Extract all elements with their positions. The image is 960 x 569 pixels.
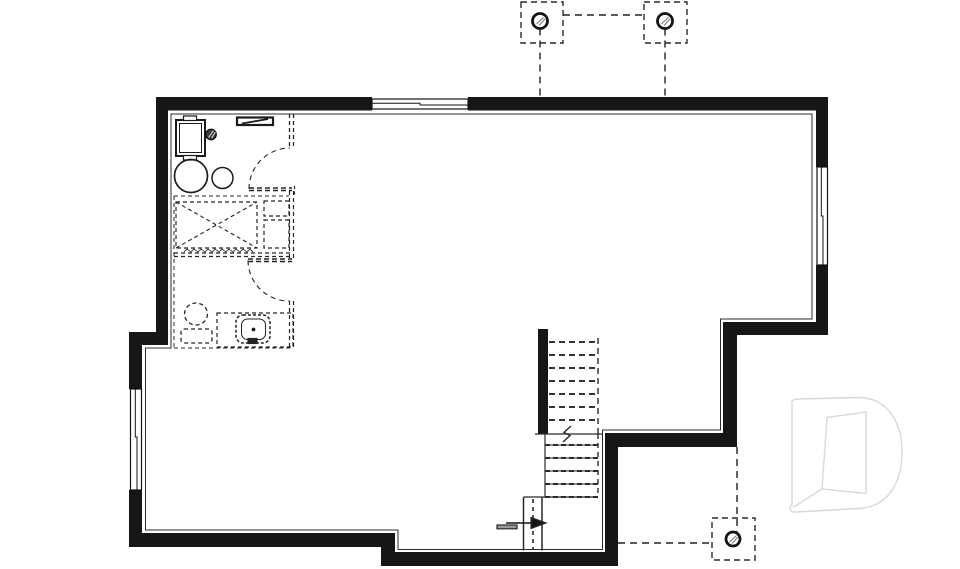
- bottom-wall-left: [129, 533, 395, 547]
- shower-curb-zigzag: [184, 249, 253, 252]
- mechanical-fixtures: [175, 116, 274, 193]
- structure-posts-footings: [521, 2, 755, 560]
- entry-arrow-gray-bar: [497, 525, 517, 529]
- future-sink-faucet: [248, 339, 257, 344]
- left-window-frame: [131, 389, 142, 490]
- right-step-wall-horizontal: [723, 322, 828, 335]
- left-wall-mid: [129, 332, 142, 389]
- future-toilet-bowl: [185, 303, 208, 325]
- stairwell-top-wall: [605, 433, 737, 447]
- stair-stub-wall: [538, 329, 548, 434]
- future-sink-drain-dot: [252, 328, 255, 331]
- future-toilet-tank: [181, 329, 212, 343]
- interior-face-outline: [146, 114, 813, 550]
- stairs: [497, 338, 603, 551]
- future-laundry-unit-small: [264, 201, 289, 216]
- furnace-duct-top: [184, 116, 197, 121]
- windows: [131, 99, 828, 490]
- door2-swing-arc: [248, 261, 290, 302]
- floor-plan-canvas: [0, 0, 960, 569]
- left-wall-upper: [156, 97, 168, 345]
- water-heater-icon: [175, 160, 208, 193]
- right-wall-upper: [816, 97, 828, 167]
- door1-swing-arc: [249, 148, 290, 189]
- top-wall-right-segment: [468, 97, 828, 111]
- small-tank-icon: [212, 168, 233, 189]
- watermark-d-inner: [822, 412, 866, 494]
- top-wall-left-segment: [156, 97, 372, 111]
- future-laundry-unit-large: [264, 220, 289, 248]
- furnace-icon: [176, 120, 205, 156]
- stairwell-right-wall: [605, 433, 618, 566]
- right-wall-lower: [816, 265, 828, 335]
- floor-plan-screenshot: [0, 0, 960, 569]
- interior-perimeter-line: [146, 114, 813, 550]
- right-step-wall-vertical: [723, 322, 737, 447]
- watermark-d-taper: [793, 489, 822, 508]
- watermark-logo: [790, 398, 902, 513]
- entry-arrow-head: [531, 518, 546, 529]
- walls: [129, 97, 828, 566]
- bottom-wall-right: [381, 552, 618, 566]
